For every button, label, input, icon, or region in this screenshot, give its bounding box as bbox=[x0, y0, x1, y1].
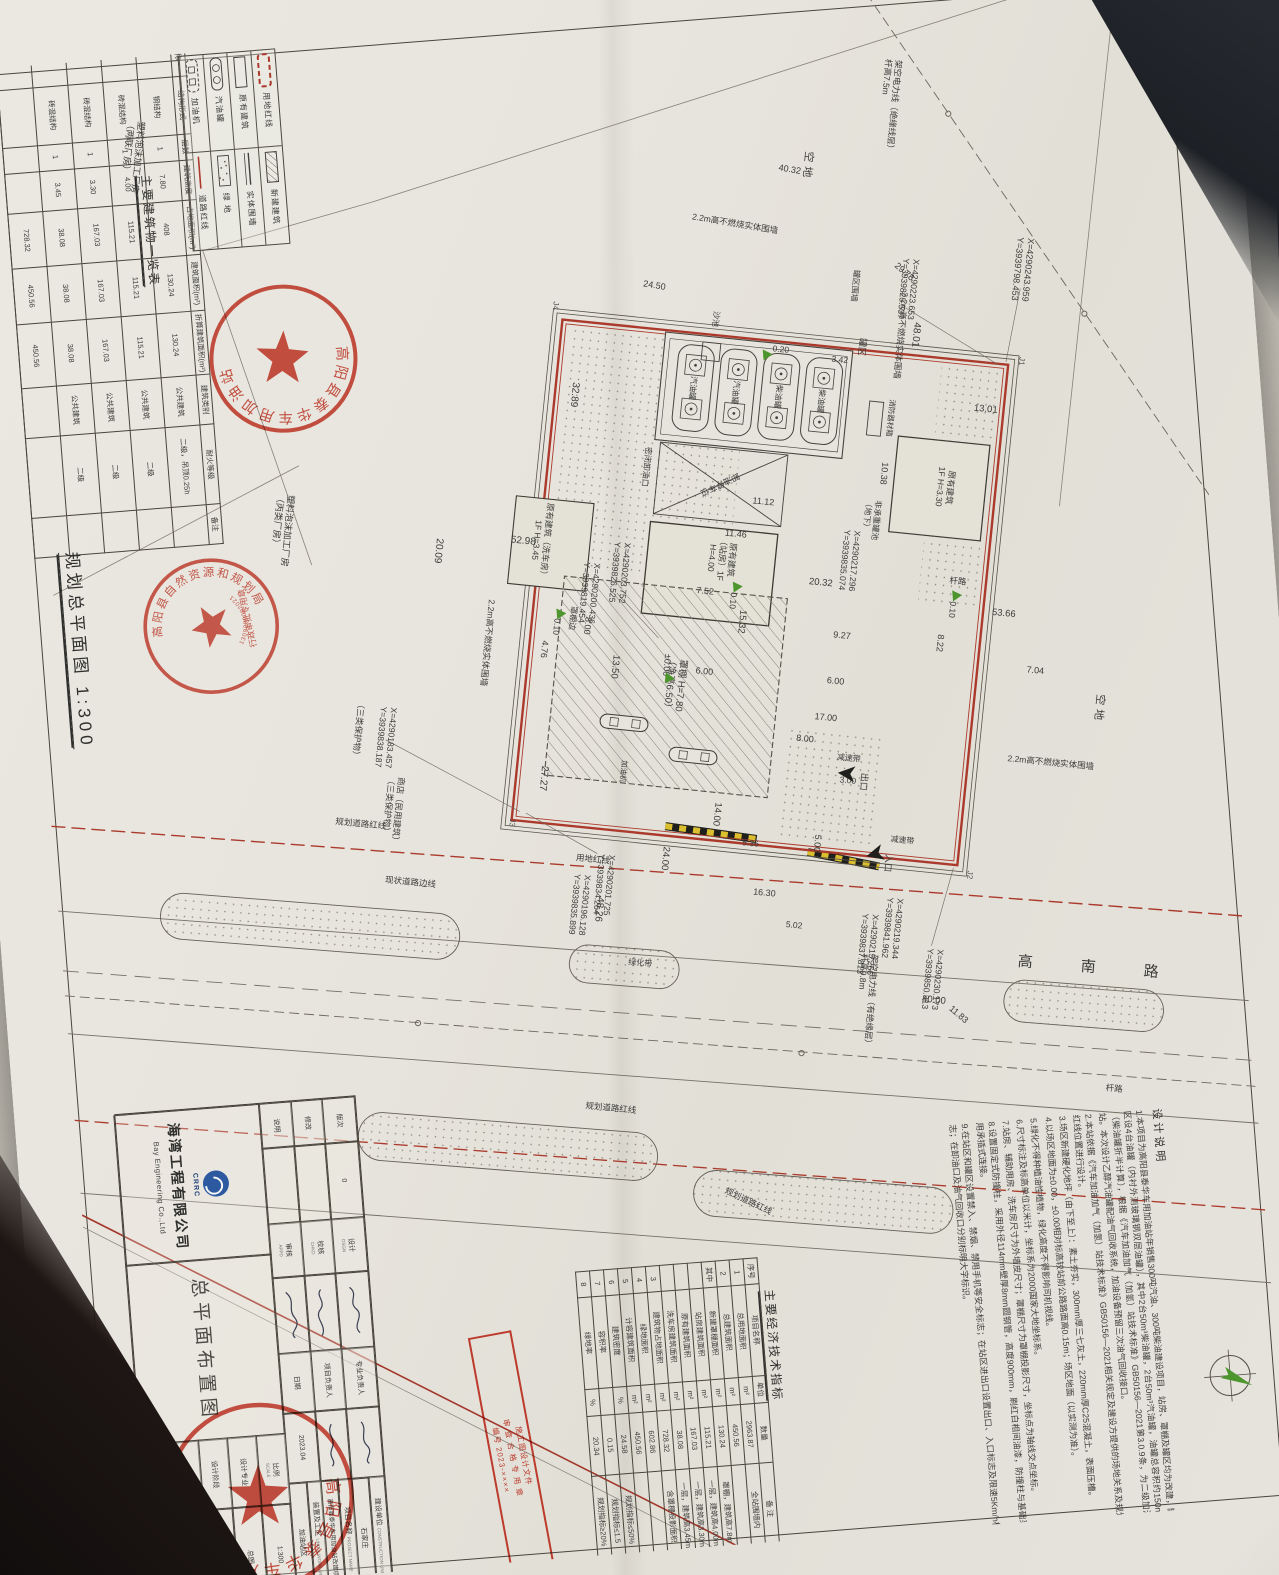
legend: 用地红线 原有建筑 汽油罐 加油机 bbox=[177, 48, 290, 251]
plan-label: 消防器材箱 bbox=[884, 399, 898, 438]
table-cell: m² bbox=[696, 1379, 712, 1408]
plan-label: X=4290217.296Y=3939835.074 bbox=[837, 529, 863, 592]
rev-label: 版次 bbox=[321, 1096, 359, 1145]
plan-label: 现状道路边线 bbox=[385, 874, 437, 889]
plan-label: 24.50 bbox=[643, 278, 667, 292]
plan-label: 6.00 bbox=[826, 675, 844, 687]
plan-label: 16.30 bbox=[753, 887, 776, 899]
plan-label: 罐区围墙 bbox=[849, 269, 862, 302]
table-cell bbox=[97, 10, 137, 82]
plan-label: 杆路 bbox=[1105, 1082, 1123, 1094]
table-cell: 1 bbox=[107, 137, 144, 166]
plan-label: 15.32 bbox=[735, 609, 748, 634]
gasoline-tank-symbol bbox=[208, 56, 226, 93]
indicator-table-body: 1总用地面积m²2963.87全站围墙内2总建筑面积m²450.56其中新建罩棚… bbox=[576, 1259, 767, 1568]
plan-label: 0.10 bbox=[947, 601, 959, 619]
table-cell: 公共建筑 bbox=[161, 375, 200, 427]
table-cell: 115.21 bbox=[112, 203, 151, 262]
solid-wall-symbol bbox=[239, 150, 257, 187]
table-cell bbox=[3, 145, 40, 174]
table-cell: m² bbox=[682, 1380, 698, 1409]
table-cell: 8 bbox=[576, 1271, 592, 1298]
table-cell bbox=[659, 1264, 675, 1291]
plan-label: 9.27 bbox=[833, 629, 851, 641]
plan-label: X=4290243.959Y=3939798.453 bbox=[1010, 237, 1037, 303]
property-redline-symbol bbox=[255, 52, 273, 89]
plan-label: J3 bbox=[507, 818, 517, 828]
table-cell: % bbox=[585, 1388, 601, 1417]
desc-label: 说明 bbox=[258, 1101, 296, 1150]
plan-label: 2.2m高不燃烧实体围墙 bbox=[691, 211, 779, 235]
table-cell bbox=[5, 171, 43, 214]
table-cell: 1 bbox=[37, 143, 74, 172]
table-cell: 38.08 bbox=[43, 208, 82, 267]
table-header-cell: 序号 bbox=[743, 1258, 759, 1285]
plan-label: 14.00 bbox=[710, 802, 723, 827]
table-cell: m² bbox=[627, 1385, 643, 1414]
svg-text:高阳县泰华车用加油站: 高阳县泰华车用加油站 bbox=[217, 331, 367, 442]
table-cell: 砖混结构 bbox=[68, 82, 107, 142]
table-cell: 167.03 bbox=[78, 206, 117, 265]
table-cell: 1 bbox=[72, 140, 109, 169]
company-logo-text: CRRC bbox=[192, 1173, 201, 1198]
plan-label: 7.04 bbox=[1026, 664, 1044, 676]
plan-label: 10.38 bbox=[878, 462, 890, 485]
plan-label: 规划道路红线 bbox=[585, 1100, 637, 1115]
green-area-symbol bbox=[215, 152, 233, 189]
plan-label: 5.02 bbox=[785, 919, 803, 931]
plan-label: 高 南 路 bbox=[1017, 953, 1181, 983]
svg-text:高阳县泰华车用加油站: 高阳县泰华车用加油站 bbox=[180, 1468, 366, 1575]
table-cell: 二级 bbox=[130, 428, 171, 510]
table-cell: 砖混结构 bbox=[33, 85, 72, 145]
table-cell bbox=[132, 7, 172, 79]
table-cell: 6 bbox=[603, 1269, 619, 1296]
plan-label: 用地红线 bbox=[576, 852, 611, 865]
plan-label: 2.2m高不燃烧实体围墙 bbox=[479, 599, 497, 687]
table-cell: m² bbox=[710, 1378, 726, 1407]
plan-label: 沙池 bbox=[711, 311, 723, 328]
plan-label: 罐区 bbox=[856, 338, 869, 357]
table-cell: 1 bbox=[729, 1259, 745, 1286]
table-cell bbox=[27, 15, 67, 87]
plan-label: 0.10 bbox=[551, 618, 563, 636]
table-cell: 130.24 bbox=[156, 312, 196, 379]
plan-label: 20.09 bbox=[432, 538, 445, 564]
table-cell: 5 bbox=[617, 1268, 633, 1295]
table-cell: 408 bbox=[147, 200, 186, 259]
plan-label: 8.00 bbox=[582, 617, 594, 635]
table-cell: 公共建筑 bbox=[91, 381, 130, 433]
table-cell bbox=[687, 1262, 703, 1289]
table-cell: 砖混结构 bbox=[103, 80, 142, 140]
plan-label: 5.00 bbox=[812, 834, 824, 852]
table-cell: m² bbox=[668, 1382, 684, 1411]
table-cell bbox=[67, 513, 105, 556]
table-cell: 115.21 bbox=[117, 259, 156, 318]
fuel-dispenser-symbol bbox=[184, 57, 202, 94]
table-cell: 7 bbox=[589, 1270, 605, 1297]
plan-label: 原有建筑1F H=3.30 bbox=[933, 466, 957, 508]
plan-label: （三类保护物） bbox=[351, 700, 367, 760]
design-notes-list: 1.本项目为高阳县泰华车用加油站年销售300吨汽油、300吨柴油建设项目，站房、… bbox=[947, 1109, 1177, 1531]
plan-label: X=4290219.344Y=3939841.962 bbox=[880, 897, 906, 960]
table-cell: m² bbox=[724, 1377, 740, 1406]
plan-label: 11.83 bbox=[947, 1003, 970, 1025]
plan-label: 杆路 bbox=[949, 575, 967, 587]
table-cell bbox=[599, 1387, 615, 1416]
plan-label: 空地 bbox=[800, 151, 817, 182]
plan-label: 13.01 bbox=[973, 403, 998, 416]
plan-label: 8.22 bbox=[934, 634, 946, 652]
stamp-gas-station-seal: 高阳县泰华车用加油站 bbox=[197, 273, 369, 445]
plan-label: J2 bbox=[965, 870, 975, 880]
fire-equipment-cabinet bbox=[866, 401, 883, 436]
road-redline-symbol bbox=[191, 154, 209, 191]
plan-label: 6.00 bbox=[695, 665, 713, 677]
plan-label: 17.00 bbox=[814, 711, 837, 723]
plan-label: 非承重罐池（地下） bbox=[860, 499, 883, 541]
table-cell: 公共建筑 bbox=[56, 384, 95, 436]
plan-label: 48.01 bbox=[909, 322, 922, 348]
table-cell: 115.21 bbox=[121, 314, 161, 381]
plan-label: 27.27 bbox=[537, 765, 550, 791]
design-notes: 设计说明 1.本项目为高阳县泰华车用加油站年销售300吨汽油、300吨柴油建设项… bbox=[945, 1108, 1197, 1532]
plan-label: 24.00 bbox=[659, 846, 672, 871]
plan-label: 绿化带 bbox=[628, 957, 653, 969]
plan-label: 入口 bbox=[882, 854, 894, 873]
plan-label: 0.20 bbox=[772, 343, 790, 355]
table-cell: 167.03 bbox=[82, 261, 121, 320]
plan-label: J4 bbox=[551, 301, 561, 311]
table-cell: 其中 bbox=[701, 1261, 717, 1288]
plan-label: 40.00 bbox=[922, 994, 947, 1007]
table-cell: 38.08 bbox=[51, 320, 91, 387]
table-cell: 4 bbox=[631, 1267, 647, 1294]
table-cell: 二级 bbox=[60, 433, 101, 515]
north-wind-rose bbox=[1202, 1348, 1258, 1404]
station-site: 柴油罐柴油罐汽油罐汽油罐罐区沙池消防器材箱卸油停车位密闭卸油口非承重罐池（地下）… bbox=[483, 293, 1021, 876]
plan-label: 8.00 bbox=[796, 733, 814, 745]
table-cell: 二级 bbox=[95, 431, 136, 513]
drawing-content: 柴油罐柴油罐汽油罐汽油罐罐区沙池消防器材箱卸油停车位密闭卸油口非承重罐池（地下）… bbox=[0, 0, 1279, 1575]
plan-label: 13.50 bbox=[608, 654, 621, 679]
plan-label: X=4290183.457Y=3939838.187 bbox=[373, 706, 399, 769]
table-cell bbox=[673, 1263, 689, 1290]
plan-label: 规划道路红线 bbox=[335, 816, 387, 831]
table-cell: 合计 bbox=[0, 18, 33, 90]
table-header-cell: 单位 bbox=[752, 1375, 768, 1404]
table-cell: 130.24 bbox=[152, 256, 191, 315]
plan-label: 5.36 bbox=[742, 837, 760, 849]
table-cell: 38.08 bbox=[47, 264, 86, 323]
table-cell: m² bbox=[655, 1383, 671, 1412]
plan-label: 7.52 bbox=[696, 585, 714, 597]
table-cell bbox=[22, 386, 61, 438]
plan-label: 11.46 bbox=[725, 528, 748, 540]
plan-label: 40.32 bbox=[778, 162, 802, 176]
company-logo-icon bbox=[202, 1169, 230, 1197]
plan-label: 空地 bbox=[1091, 694, 1108, 725]
table-cell: m² bbox=[738, 1376, 754, 1405]
plan-label: X=4290196.128Y=3939835.899 bbox=[567, 873, 593, 936]
table-cell bbox=[25, 436, 66, 518]
photo-of-site-plan-sheet: 柴油罐柴油罐汽油罐汽油罐罐区沙池消防器材箱卸油停车位密闭卸油口非承重罐池（地下）… bbox=[0, 0, 1279, 1575]
table-cell: 4.00 bbox=[109, 163, 147, 206]
table-cell: 2 bbox=[715, 1260, 731, 1287]
table-cell: 7.80 bbox=[144, 160, 182, 203]
table-cell bbox=[101, 510, 139, 553]
table-cell: 1 bbox=[142, 134, 179, 163]
table-cell: 450.56 bbox=[17, 323, 57, 390]
table-cell bbox=[0, 88, 37, 148]
new-building-symbol bbox=[263, 148, 281, 185]
indicator-table: 序号项目名称单位数量备 注 1总用地面积m²2963.87全站围墙内2总建筑面积… bbox=[575, 1257, 781, 1568]
stamp-planning-bureau-seal: 高阳县自然资源和规划局 行政审批专用章 1309280002021 bbox=[131, 545, 292, 706]
table-cell bbox=[62, 13, 102, 85]
plan-label: 53.66 bbox=[991, 607, 1016, 620]
company-block: CRRC 海湾工程有限公司 Bay Engineering Co.,Ltd bbox=[113, 1104, 271, 1267]
table-cell: 3.45 bbox=[39, 169, 77, 212]
table-cell: 二级，吊顶0.25h bbox=[165, 425, 206, 507]
table-cell: 3 bbox=[645, 1265, 661, 1292]
table-cell: 公共建筑 bbox=[126, 378, 165, 430]
legend-col-2: 新建建筑 实体围墙 绿 地 道路红线 bbox=[186, 146, 289, 250]
plan-label: 3.42 bbox=[831, 354, 849, 366]
plan-label: 减速带 bbox=[890, 834, 915, 846]
plan-label: J1 bbox=[1017, 357, 1027, 367]
plan-label: 架空电力线（绝缘线层）杆高7.5m bbox=[875, 59, 904, 154]
table-cell: 167.03 bbox=[86, 317, 126, 384]
table-cell bbox=[171, 505, 209, 548]
drawing-sheet: 柴油罐柴油罐汽油罐汽油罐罐区沙池消防器材箱卸油停车位密闭卸油口非承重罐池（地下）… bbox=[0, 0, 1279, 1575]
plan-label: 商店（民用建筑）（三类保护物） bbox=[380, 776, 406, 846]
plan-label: 2.2m高不燃烧实体围墙 bbox=[892, 292, 910, 380]
table-cell: m² bbox=[641, 1384, 657, 1413]
table-cell: 450.56 bbox=[12, 267, 51, 326]
plan-label: 2.2m高不燃烧实体围墙 bbox=[1007, 753, 1095, 771]
legend-col-1: 用地红线 原有建筑 汽油罐 加油机 bbox=[178, 49, 281, 153]
table-cell: 钢结构 bbox=[138, 77, 177, 137]
plan-label: 11.12 bbox=[752, 495, 775, 507]
modify-label: 修改 bbox=[290, 1099, 327, 1147]
plan-label: 0.10 bbox=[728, 592, 740, 610]
plan-label: 20.32 bbox=[808, 576, 833, 589]
existing-building-symbol bbox=[231, 54, 249, 91]
table-cell: % bbox=[613, 1386, 629, 1415]
table-cell: 728.32 bbox=[8, 211, 47, 270]
plan-label: 4.76 bbox=[539, 640, 551, 658]
table-cell bbox=[136, 507, 174, 550]
plan-label: 出口 bbox=[858, 772, 871, 791]
stamp-titleblock-seal: 高阳县泰华车用加油站 bbox=[152, 1389, 367, 1575]
table-cell: 3.30 bbox=[74, 166, 112, 209]
